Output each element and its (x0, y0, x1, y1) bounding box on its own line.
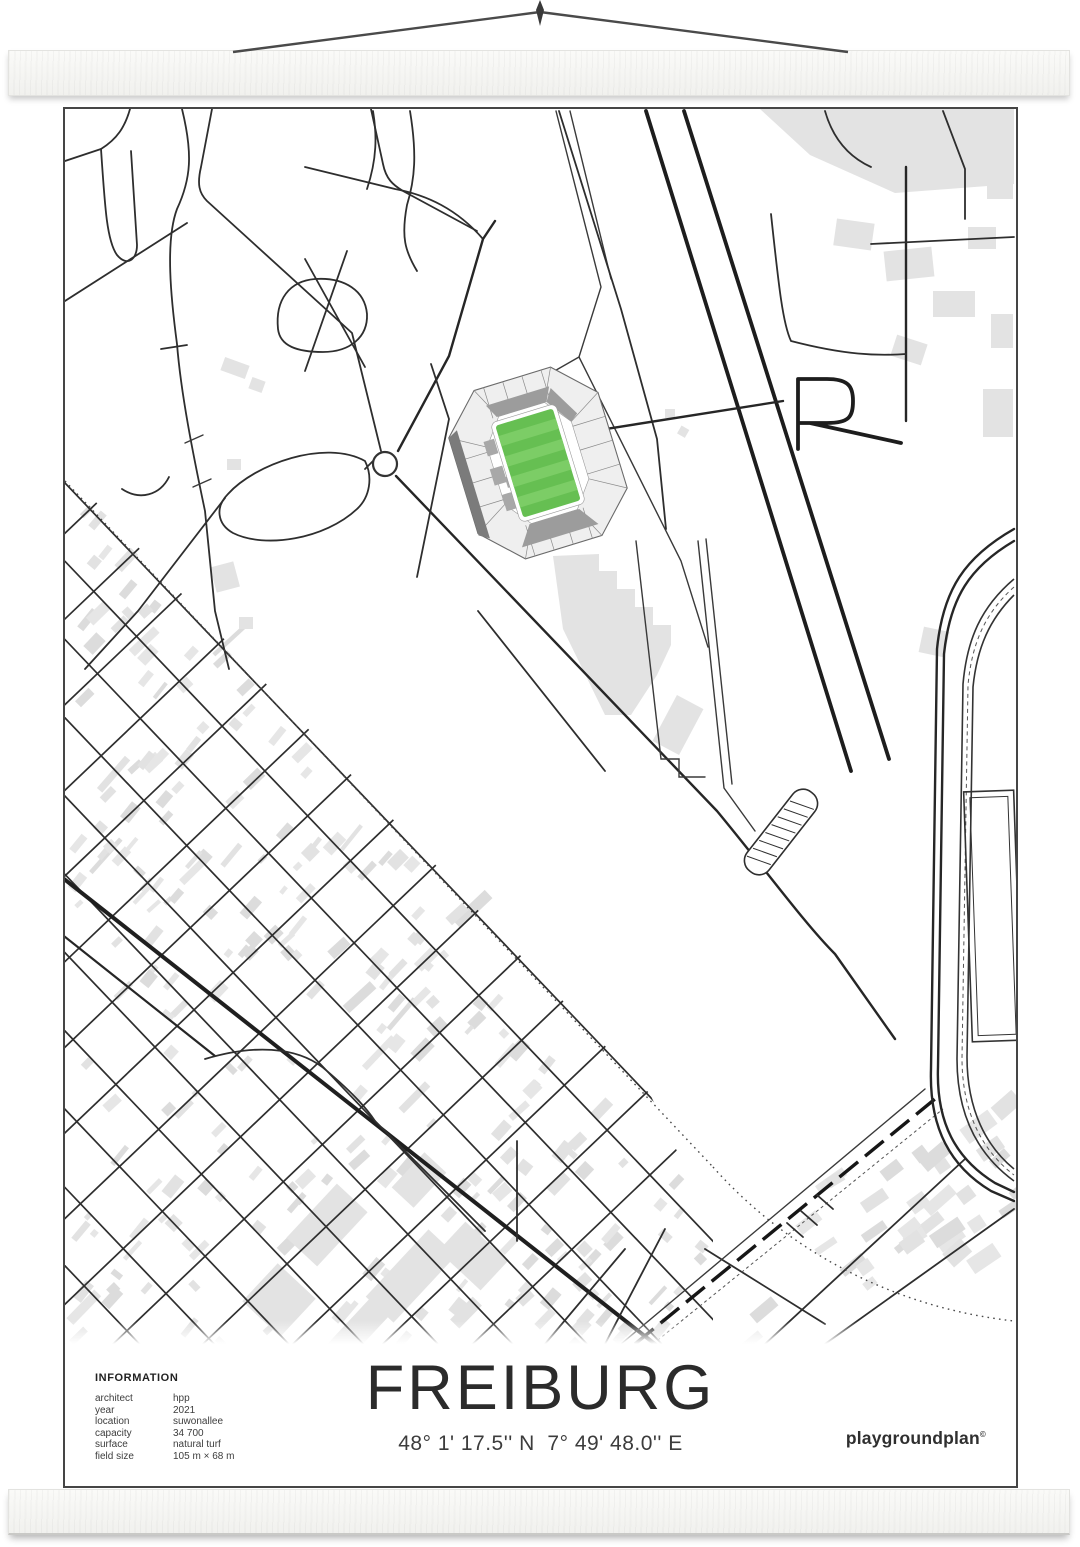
hanger-bar-bottom (8, 1489, 1070, 1535)
river-bank (967, 595, 1014, 1169)
brand-name: playgroundplan (846, 1428, 980, 1448)
map-fade (65, 1321, 1016, 1344)
hanger-pin (536, 0, 544, 26)
river-bank (957, 579, 1014, 1181)
stadium-map (65, 109, 1016, 1344)
poster-caption-area: INFORMATION architecthppyear2021location… (65, 1344, 1016, 1486)
parking-structure (739, 784, 823, 880)
highway-b31 (938, 541, 1014, 1192)
poster-frame: INFORMATION architecthppyear2021location… (63, 107, 1018, 1488)
brand-logo: playgroundplan© (846, 1428, 986, 1449)
hanger-string-svg (0, 0, 1080, 110)
poster-scene: INFORMATION architecthppyear2021location… (0, 0, 1080, 1547)
map-canvas (65, 109, 1016, 1344)
large-buildings-layer (210, 109, 1014, 1344)
brand-copyright-mark: © (980, 1430, 986, 1439)
stadium (438, 356, 639, 570)
tram-line (635, 1099, 935, 1344)
poster-title: FREIBURG (65, 1357, 1016, 1420)
runway-line (646, 111, 851, 771)
roundabout (373, 452, 397, 476)
